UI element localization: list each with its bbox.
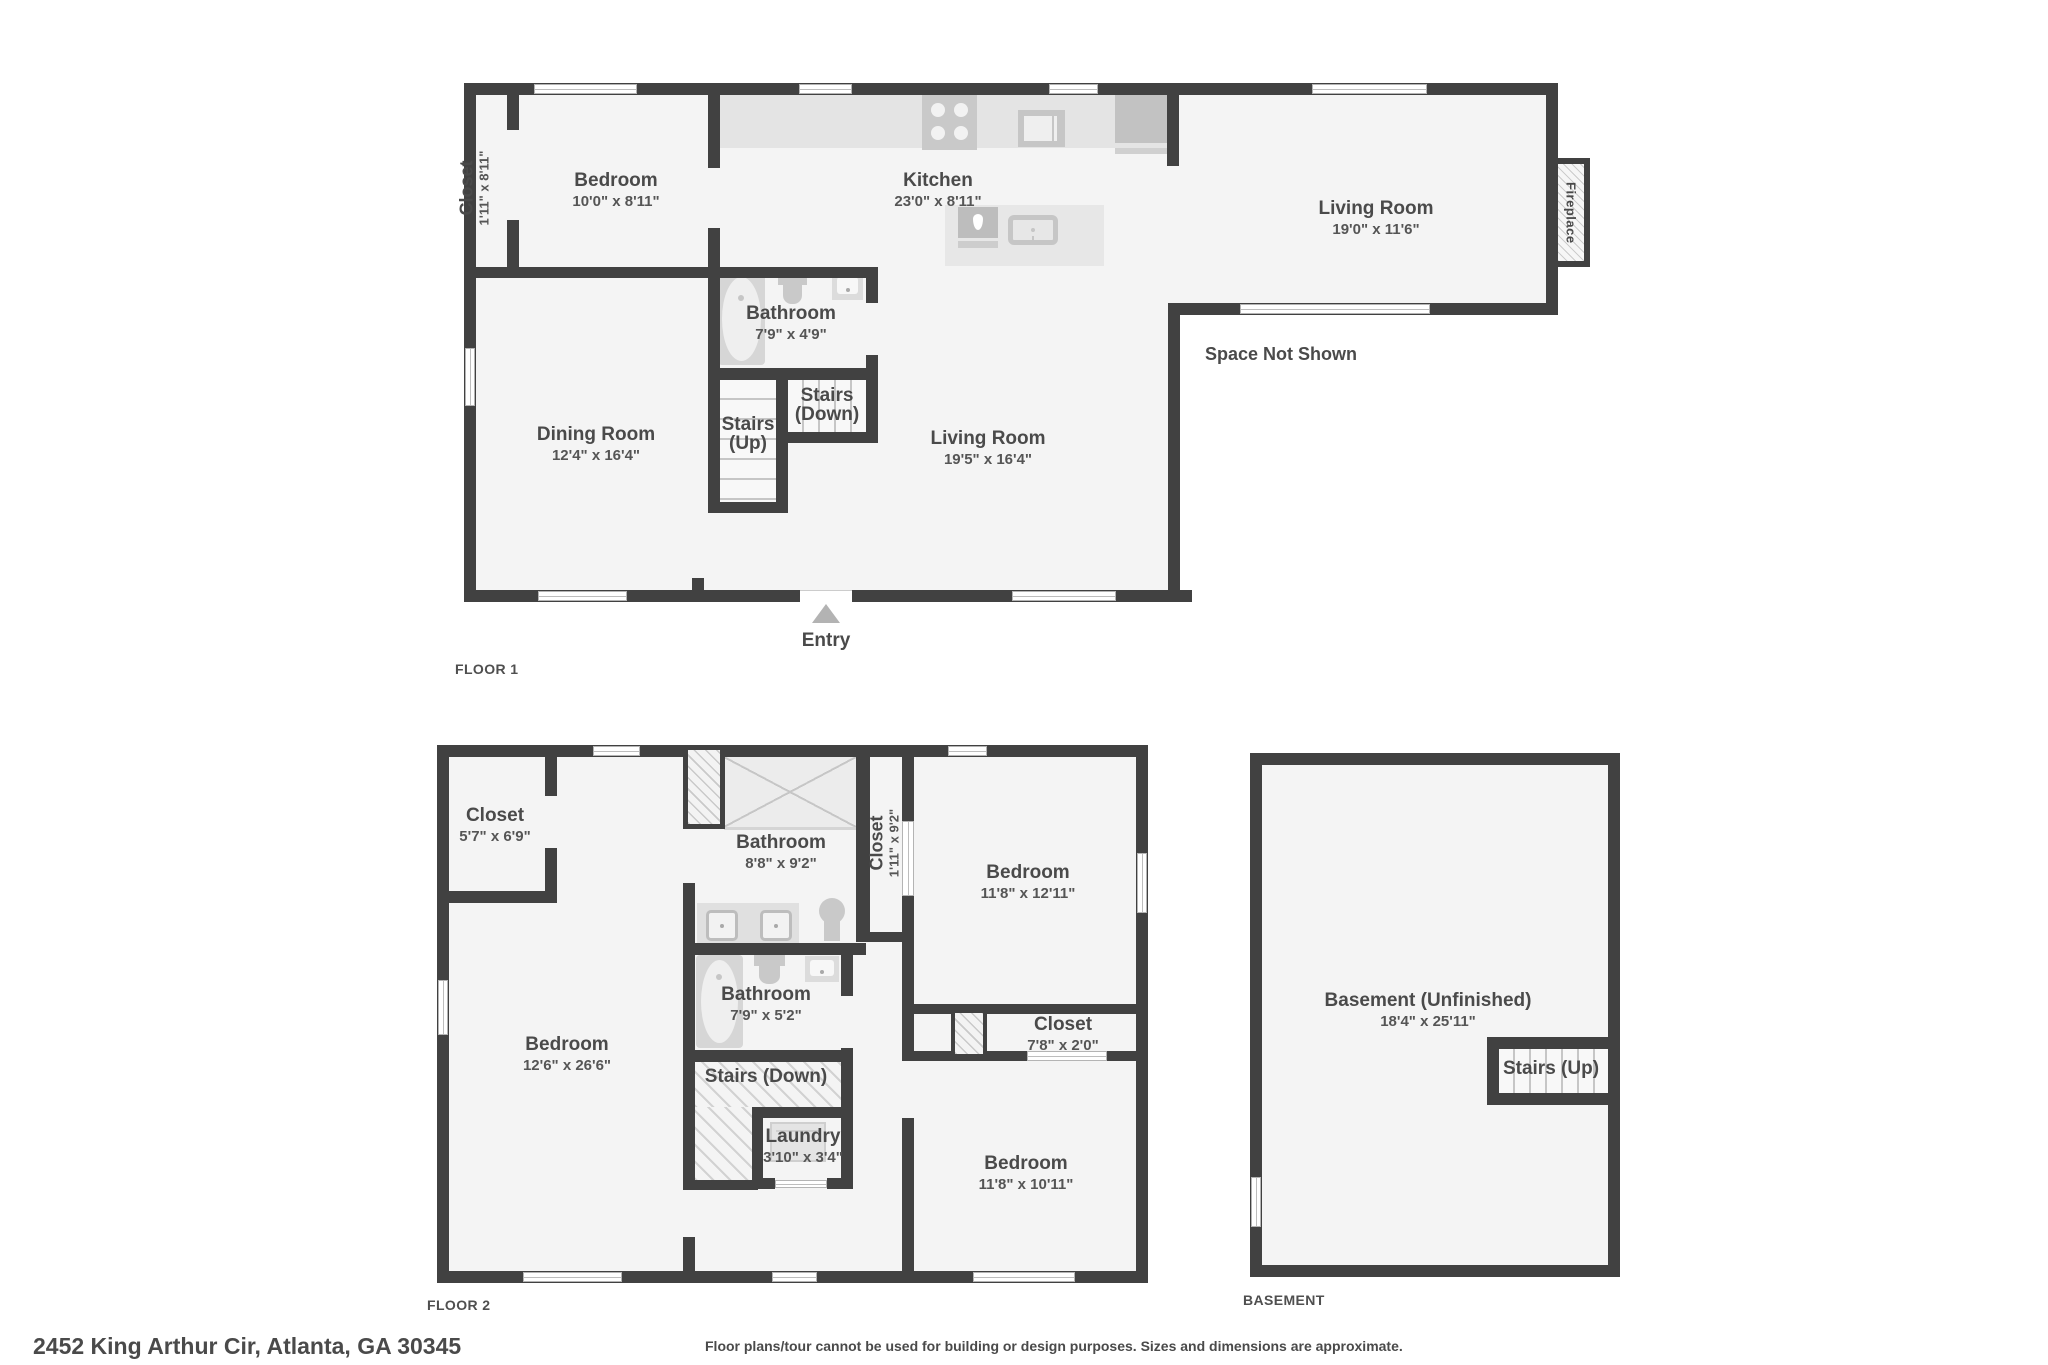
shape [973,214,983,230]
room-name: Closet [459,805,530,826]
wall-segment [902,745,914,821]
room-label-dining: Dining Room 12'4" x 16'4" [537,424,655,464]
room-dimensions: 3'10" x 3'4" [763,1149,843,1166]
room-label-bathroom-lower: Bathroom 7'9" x 5'2" [721,984,811,1024]
room-name: Closet [457,151,477,226]
sink-icon [805,956,839,982]
room-name: Living Room [1318,198,1433,219]
sink-icon [760,910,792,941]
wall-segment [902,1118,914,1271]
room-label-laundry: Laundry 3'10" x 3'4" [763,1126,843,1166]
room-dimensions: 7'8" x 2'0" [1027,1037,1098,1054]
room-name: Kitchen [894,170,981,191]
stairs-down-label-f1: Stairs (Down) [795,386,859,424]
window [1240,304,1430,314]
entry-door-opening [800,590,852,603]
drain-dot [738,295,744,301]
drain-dot [716,974,722,980]
stove-burner-icon [954,103,968,117]
kitchen-island [945,205,1104,266]
window [1012,591,1116,601]
room-dimensions: 5'7" x 6'9" [459,828,530,845]
room-label-bedroom-f1: Bedroom 10'0" x 8'11" [572,170,659,210]
stove-burner-icon [931,126,945,140]
room-label-living-upper: Living Room 19'0" x 11'6" [1318,198,1433,238]
wall-segment [752,1178,775,1189]
wall-segment [866,355,878,443]
room-label-closet-strip: Closet 7'8" x 2'0" [1027,1014,1098,1054]
room-label-living-main: Living Room 19'5" x 16'4" [930,428,1045,468]
wall-segment [1168,303,1180,602]
wall-segment [1608,753,1620,1277]
wall-segment [437,891,557,903]
room-dimensions: 12'6" x 26'6" [523,1057,611,1074]
room-dimensions: 8'8" x 9'2" [736,855,826,872]
shape [1054,116,1057,141]
window [1251,1177,1261,1227]
wall-segment [464,267,720,278]
room-label-closet-f1: Closet 1'11" x 8'11" [457,151,492,226]
window [1312,84,1427,94]
wall-segment [776,380,788,513]
window [1049,84,1098,94]
floor1-tag: FLOOR 1 [455,661,518,677]
room-dimensions: 1'11" x 8'11" [477,151,492,226]
stairs-down-label-f2: Stairs (Down) [705,1066,827,1088]
room-name: Basement (Unfinished) [1325,990,1532,1011]
wall-segment [752,1107,853,1118]
wall-segment [692,578,704,590]
wall-segment [1487,1093,1620,1105]
property-address: 2452 King Arthur Cir, Atlanta, GA 30345 [33,1333,461,1360]
window [593,746,640,756]
floor2-tag: FLOOR 2 [427,1297,490,1313]
disclaimer-text: Floor plans/tour cannot be used for buil… [705,1338,1355,1354]
wall-segment [683,1050,853,1062]
wall-segment [1107,1051,1148,1061]
wall-segment [752,1107,763,1189]
wall-segment [683,943,866,955]
shape: (Up) [722,434,775,453]
window [438,980,448,1035]
refrigerator-icon [1115,95,1167,143]
room-name: Closet [1027,1014,1098,1035]
room-dimensions: 1'11" x 9'2" [887,809,902,877]
wall-segment [720,267,878,278]
room-dimensions: 10'0" x 8'11" [572,193,659,210]
room-name: Bedroom [523,1034,611,1055]
room-name: Bathroom [721,984,811,1005]
wall-segment [545,757,557,796]
stove-icon [922,95,977,150]
window [534,84,637,94]
window [523,1272,622,1282]
wall-segment [841,943,853,996]
chimney-icon [951,1009,987,1058]
room-dimensions: 23'0" x 8'11" [894,193,981,210]
wall-segment [708,95,720,168]
stove-burner-icon [931,103,945,117]
room-label-closet-tl: Closet 5'7" x 6'9" [459,805,530,845]
wall-segment [1487,1037,1620,1049]
toilet-icon [754,955,785,966]
room-label-bedroom-tr: Bedroom 11'8" x 12'11" [981,862,1076,902]
stove-burner-icon [954,126,968,140]
island-sink-icon [958,207,998,238]
window [465,348,475,406]
room-label-bathroom-f1: Bathroom 7'9" x 4'9" [746,303,836,343]
closet-door-opening [902,821,914,896]
room-name: Bedroom [981,862,1076,883]
room-label-closet-vert: Closet 1'11" x 9'2" [867,809,902,877]
room-label-kitchen: Kitchen 23'0" x 8'11" [894,170,981,210]
window [772,1272,817,1282]
shape: (Down) [795,405,859,424]
wall-segment [708,502,788,513]
wall-segment [788,432,878,443]
wall-segment [842,1107,853,1189]
room-label-bedroom-br: Bedroom 11'8" x 10'11" [979,1153,1074,1193]
faucet-dot [720,924,724,928]
shape: Stairs [795,386,859,405]
laundry-door-opening [775,1180,827,1188]
wall-segment [1250,753,1620,765]
window [538,591,627,601]
shower-icon [724,757,856,830]
dishwasher-icon [1008,215,1058,245]
fireplace-icon: Fireplace [1552,158,1590,267]
toilet-icon [783,285,802,304]
room-name: Closet [867,809,887,877]
wall-segment [827,1178,853,1189]
shape [958,241,998,248]
shape [1032,236,1034,241]
entry-label: Entry [802,630,851,652]
room-label-bathroom-upper: Bathroom 8'8" x 9'2" [736,832,826,872]
room-name: Dining Room [537,424,655,445]
wall-segment [507,95,519,130]
wall-segment [437,745,1148,757]
room-dimensions: 11'8" x 10'11" [979,1176,1074,1193]
wall-segment [683,1180,758,1190]
space-not-shown-label: Space Not Shown [1205,344,1357,365]
entry-triangle-icon [812,604,840,623]
wall-segment [866,267,878,303]
shape: Stairs [722,415,775,434]
wall-segment [1167,83,1179,166]
toilet-icon [759,966,780,984]
window [799,84,852,94]
wall-segment [683,1237,695,1271]
wall-segment [1136,745,1148,1283]
faucet-dot [820,970,824,974]
room-dimensions: 19'0" x 11'6" [1318,221,1433,238]
wall-segment [720,368,878,380]
basement-tag: BASEMENT [1243,1292,1325,1308]
room-name: Bedroom [979,1153,1074,1174]
wall-segment [683,883,695,1190]
room-dimensions: 7'9" x 5'2" [721,1007,811,1024]
wall-segment [1250,1265,1620,1277]
hatched-area [695,1107,758,1180]
room-dimensions: 11'8" x 12'11" [981,885,1076,902]
room-name: Bathroom [746,303,836,324]
room-dimensions: 12'4" x 16'4" [537,447,655,464]
window [1137,853,1147,913]
room-name: Laundry [763,1126,843,1147]
chimney-icon [683,745,725,829]
microwave-icon [1018,110,1065,147]
stairs-up-label-basement: Stairs (Up) [1503,1058,1599,1080]
sink-icon [706,910,738,941]
shape [1031,228,1035,232]
room-label-bedroom-left: Bedroom 12'6" x 26'6" [523,1034,611,1074]
room-name: Living Room [930,428,1045,449]
room-dimensions: 18'4" x 25'11" [1325,1013,1532,1030]
fireplace-label: Fireplace [1564,182,1579,244]
toilet-tank [824,921,840,941]
floor-plan-canvas: Fireplace Closet 1'11" x 8'11" Bedroom 1… [0,0,2048,1365]
wall-segment [902,1004,1148,1014]
wall-segment [902,896,914,1060]
window [973,1272,1075,1282]
room-dimensions: 19'5" x 16'4" [930,451,1045,468]
room-dimensions: 7'9" x 4'9" [746,326,836,343]
window [948,746,987,756]
shape [1024,116,1052,141]
wall-segment [507,220,519,267]
stairs-up-label-f1: Stairs (Up) [722,415,775,453]
appliance [1115,148,1167,154]
faucet-dot [846,288,850,292]
room-label-basement: Basement (Unfinished) 18'4" x 25'11" [1325,990,1532,1030]
room-name: Bathroom [736,832,826,853]
faucet-dot [774,924,778,928]
room-name: Bedroom [572,170,659,191]
